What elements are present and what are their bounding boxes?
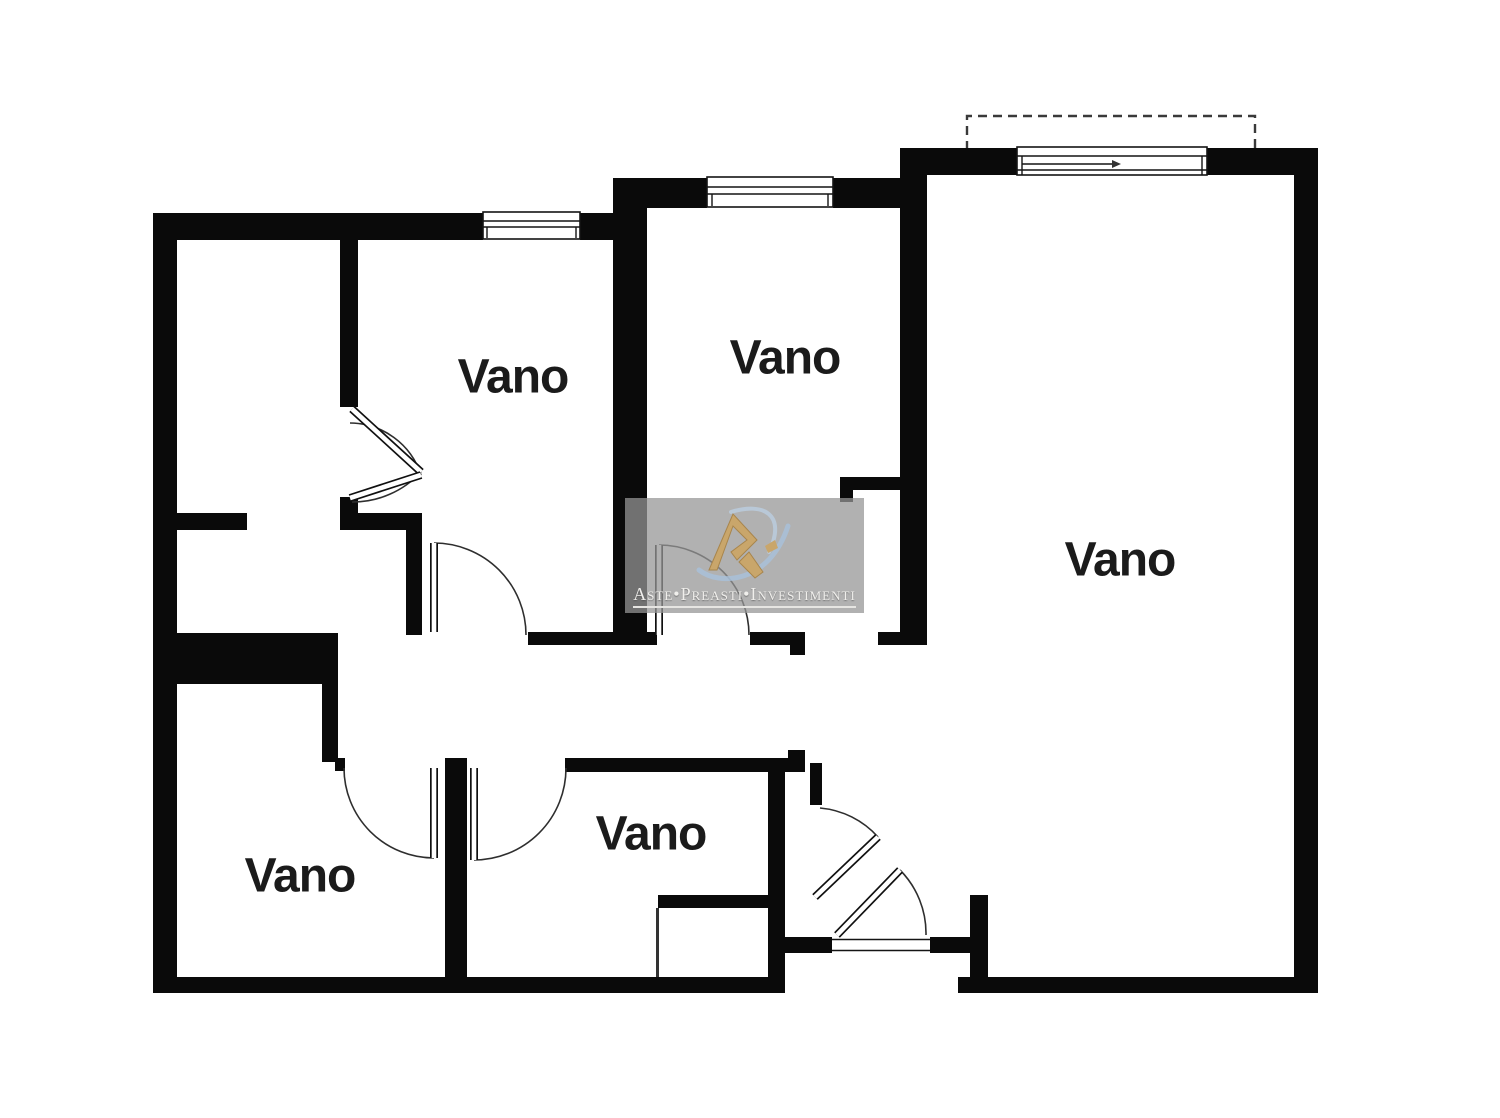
watermark-panel: Aste•Preasti•Investimenti (625, 498, 864, 613)
room-label-top-left: Vano (458, 350, 569, 405)
entrance-threshold (832, 937, 930, 953)
room-label-bottom-middle: Vano (596, 807, 707, 862)
door-arc (344, 768, 434, 858)
room-label-bottom-left: Vano (245, 849, 356, 904)
door-arc (434, 543, 526, 635)
room-label-right: Vano (1065, 533, 1176, 588)
window-room-right (1017, 147, 1207, 175)
ri-monogram-logo-icon (685, 500, 805, 589)
floor-plan-image: Vano Vano Vano Vano Vano Aste•Preasti•In… (0, 0, 1500, 1118)
balcony-dashed-outline (967, 116, 1255, 150)
room-label-top-middle: Vano (730, 331, 841, 386)
door-arc (474, 768, 566, 860)
door-arc (820, 808, 878, 837)
window-room-top-left (483, 212, 580, 239)
window-room-top-middle (707, 177, 833, 207)
door-arc (900, 870, 926, 935)
